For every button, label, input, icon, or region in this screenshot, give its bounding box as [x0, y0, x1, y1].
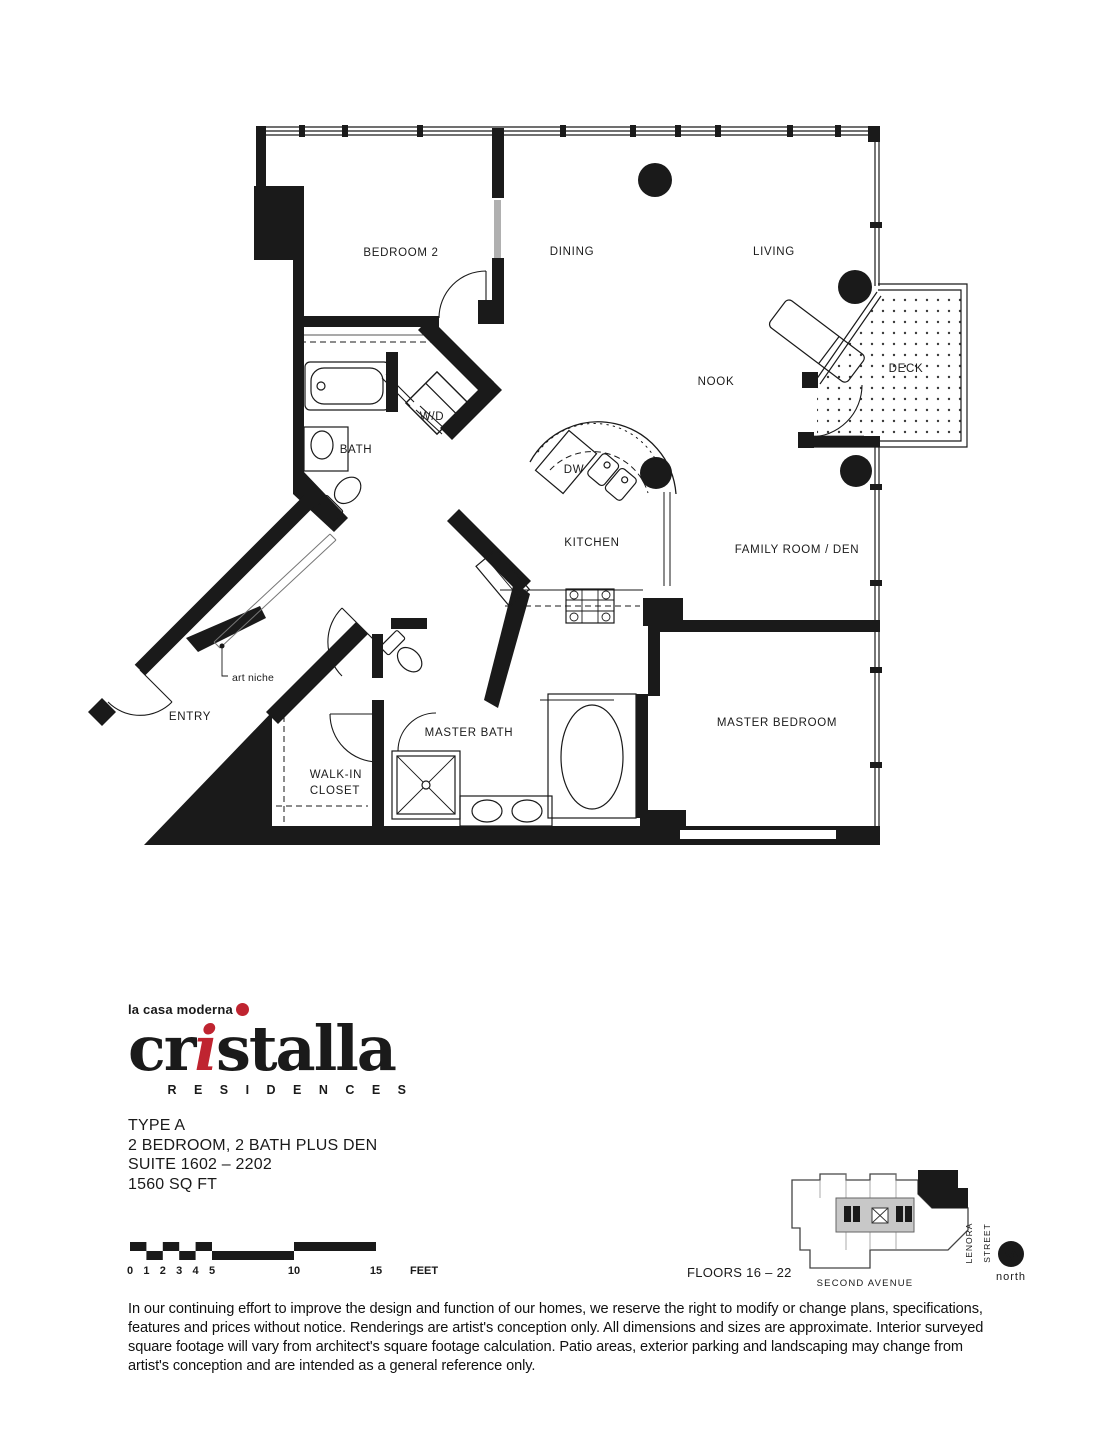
room-label-master-bath: MASTER BATH — [425, 727, 514, 739]
scale-tick-5: 5 — [209, 1265, 215, 1277]
disclaimer-text: In our continuing effort to improve the … — [128, 1300, 1000, 1376]
entry-outer-wall — [140, 500, 310, 670]
brand-residences: R E S I D E N C E S — [128, 1083, 413, 1097]
unit-type: TYPE A — [128, 1116, 377, 1136]
brand-logo: la casa moderna cristalla R E S I D E N … — [128, 1002, 406, 1097]
room-label-dw: DW — [564, 464, 585, 476]
scale-tick-10: 10 — [288, 1265, 300, 1277]
scale-tick-4: 4 — [193, 1265, 200, 1277]
second-avenue-label: SECOND AVENUE — [817, 1278, 914, 1289]
scale-bar-ticks: 0 1 2 3 4 5 10 15 — [127, 1265, 382, 1277]
unit-area: 1560 SQ FT — [128, 1175, 377, 1195]
unit-bedrooms: 2 BEDROOM, 2 BATH PLUS DEN — [128, 1136, 377, 1156]
disclaimer-line-1: In our continuing effort to improve the … — [128, 1300, 1000, 1319]
scale-bar-blocks — [130, 1242, 376, 1260]
scale-tick-1: 1 — [143, 1265, 149, 1277]
room-label-bath: BATH — [340, 444, 373, 456]
north-label: north — [996, 1271, 1026, 1283]
unit-suite: SUITE 1602 – 2202 — [128, 1155, 377, 1175]
building-footprint — [792, 1170, 968, 1268]
room-label-entry: ENTRY — [169, 711, 211, 723]
scale-tick-2: 2 — [160, 1265, 166, 1277]
room-label-bedroom2: BEDROOM 2 — [363, 247, 438, 259]
floor-plan-sheet: BEDROOM 2 DINING LIVING NOOK DECK BATH W… — [0, 0, 1112, 1439]
lenora-label: LENORA — [964, 1223, 974, 1264]
room-label-closet: CLOSET — [310, 785, 360, 797]
plan-lines — [214, 335, 676, 822]
key-plan: FLOORS 16 – 22 SECOND AVENUE LENORA STRE… — [660, 1150, 1040, 1300]
room-label-deck: DECK — [889, 363, 924, 375]
unit-info: TYPE A 2 BEDROOM, 2 BATH PLUS DEN SUITE … — [128, 1116, 377, 1194]
room-label-nook: NOOK — [698, 376, 735, 388]
scale-tick-0: 0 — [127, 1265, 133, 1277]
room-label-kitchen: KITCHEN — [564, 537, 619, 549]
brand-wordmark-pre: cr — [128, 1012, 194, 1085]
room-label-family-room-den: FAMILY ROOM / DEN — [735, 544, 860, 556]
scale-tick-3: 3 — [176, 1265, 182, 1277]
brand-wordmark-post: stalla — [216, 1012, 395, 1085]
brand-wordmark: cristalla — [128, 1018, 406, 1080]
north-arrow-icon: N — [998, 1241, 1024, 1267]
floors-label: FLOORS 16 – 22 — [687, 1265, 792, 1280]
scale-unit-label: FEET — [410, 1265, 438, 1277]
art-niche-label: art niche — [232, 672, 274, 684]
scale-bar: 0 1 2 3 4 5 10 15 FEET — [126, 1236, 466, 1282]
disclaimer-line-2: features and prices without notice. Rend… — [128, 1319, 1000, 1338]
room-label-master-bedroom: MASTER BEDROOM — [717, 717, 837, 729]
art-niche-marker — [220, 644, 225, 649]
room-label-wd: W/D — [420, 411, 444, 423]
street-label: STREET — [982, 1223, 992, 1263]
brand-wordmark-accent: i — [194, 1012, 216, 1085]
room-label-walkin: WALK-IN — [310, 769, 362, 781]
plan-doors — [108, 271, 862, 762]
room-label-dining: DINING — [550, 246, 594, 258]
floor-plan-drawing: BEDROOM 2 DINING LIVING NOOK DECK BATH W… — [0, 0, 1112, 965]
scale-tick-15: 15 — [370, 1265, 382, 1277]
room-label-living: LIVING — [753, 246, 795, 258]
disclaimer-line-3: square footage will vary from architect'… — [128, 1338, 1000, 1357]
disclaimer-line-4: artist's conception and are intended as … — [128, 1357, 1000, 1376]
